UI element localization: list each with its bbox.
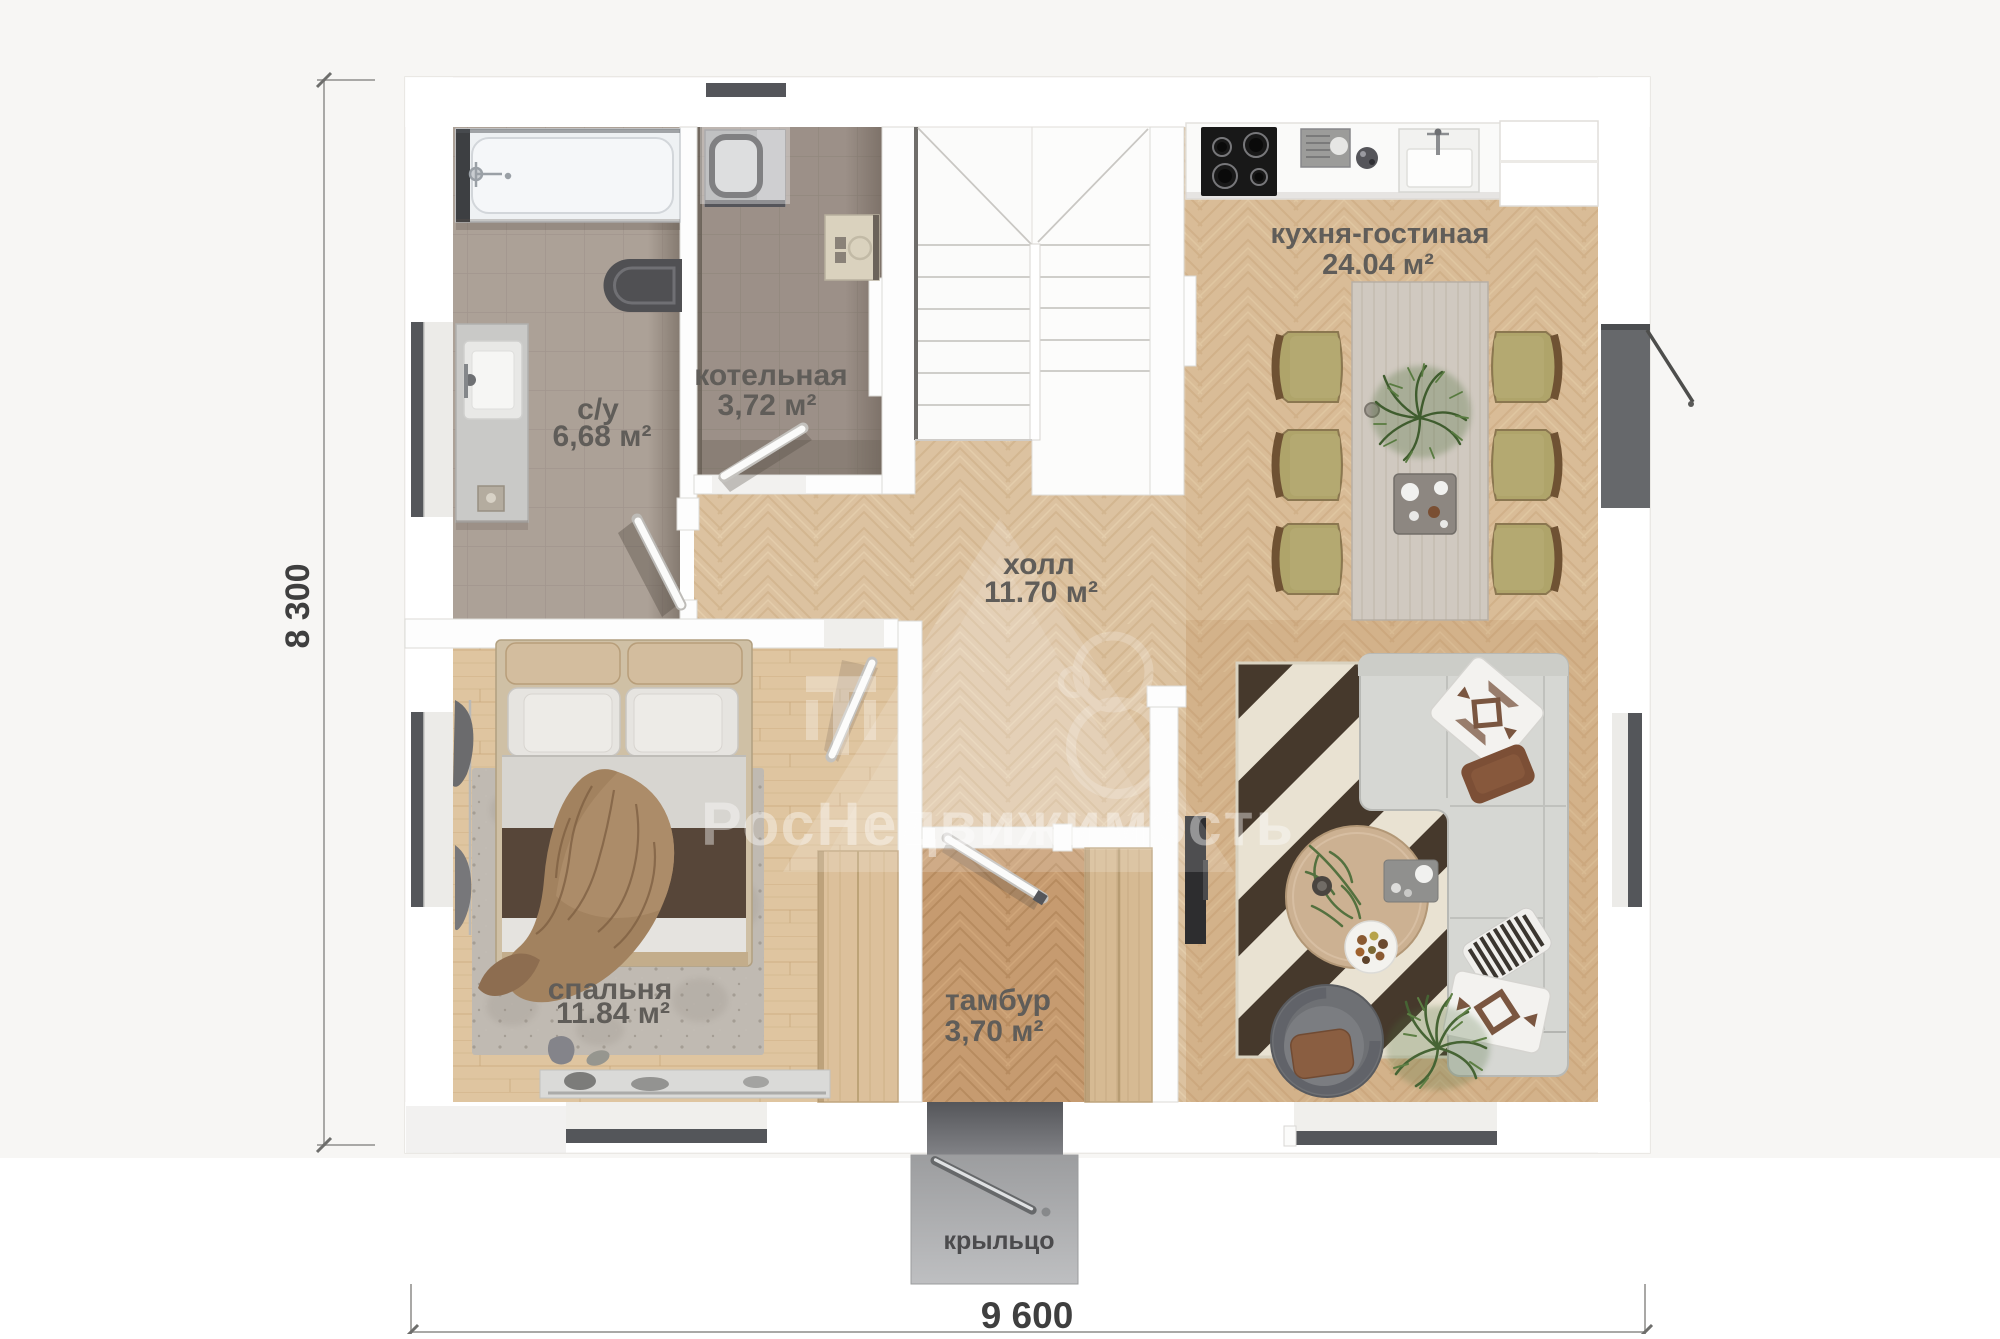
svg-text:котельная: котельная <box>694 359 847 392</box>
svg-text:крыльцо: крыльцо <box>943 1227 1054 1255</box>
svg-text:6,68 м²: 6,68 м² <box>553 420 652 453</box>
svg-text:9 600: 9 600 <box>981 1295 1074 1334</box>
svg-text:кухня-гостиная: кухня-гостиная <box>1271 218 1490 250</box>
svg-text:11.84 м²: 11.84 м² <box>556 997 670 1030</box>
svg-text:24.04 м²: 24.04 м² <box>1322 249 1434 281</box>
svg-text:8 300: 8 300 <box>279 563 317 648</box>
svg-text:11.70 м²: 11.70 м² <box>984 576 1098 609</box>
svg-text:тамбур: тамбур <box>945 984 1051 1017</box>
svg-text:3,72 м²: 3,72 м² <box>718 389 817 422</box>
svg-text:3,70 м²: 3,70 м² <box>945 1015 1044 1048</box>
svg-text:РосНедвижимость: РосНедвижимость <box>701 790 1295 858</box>
